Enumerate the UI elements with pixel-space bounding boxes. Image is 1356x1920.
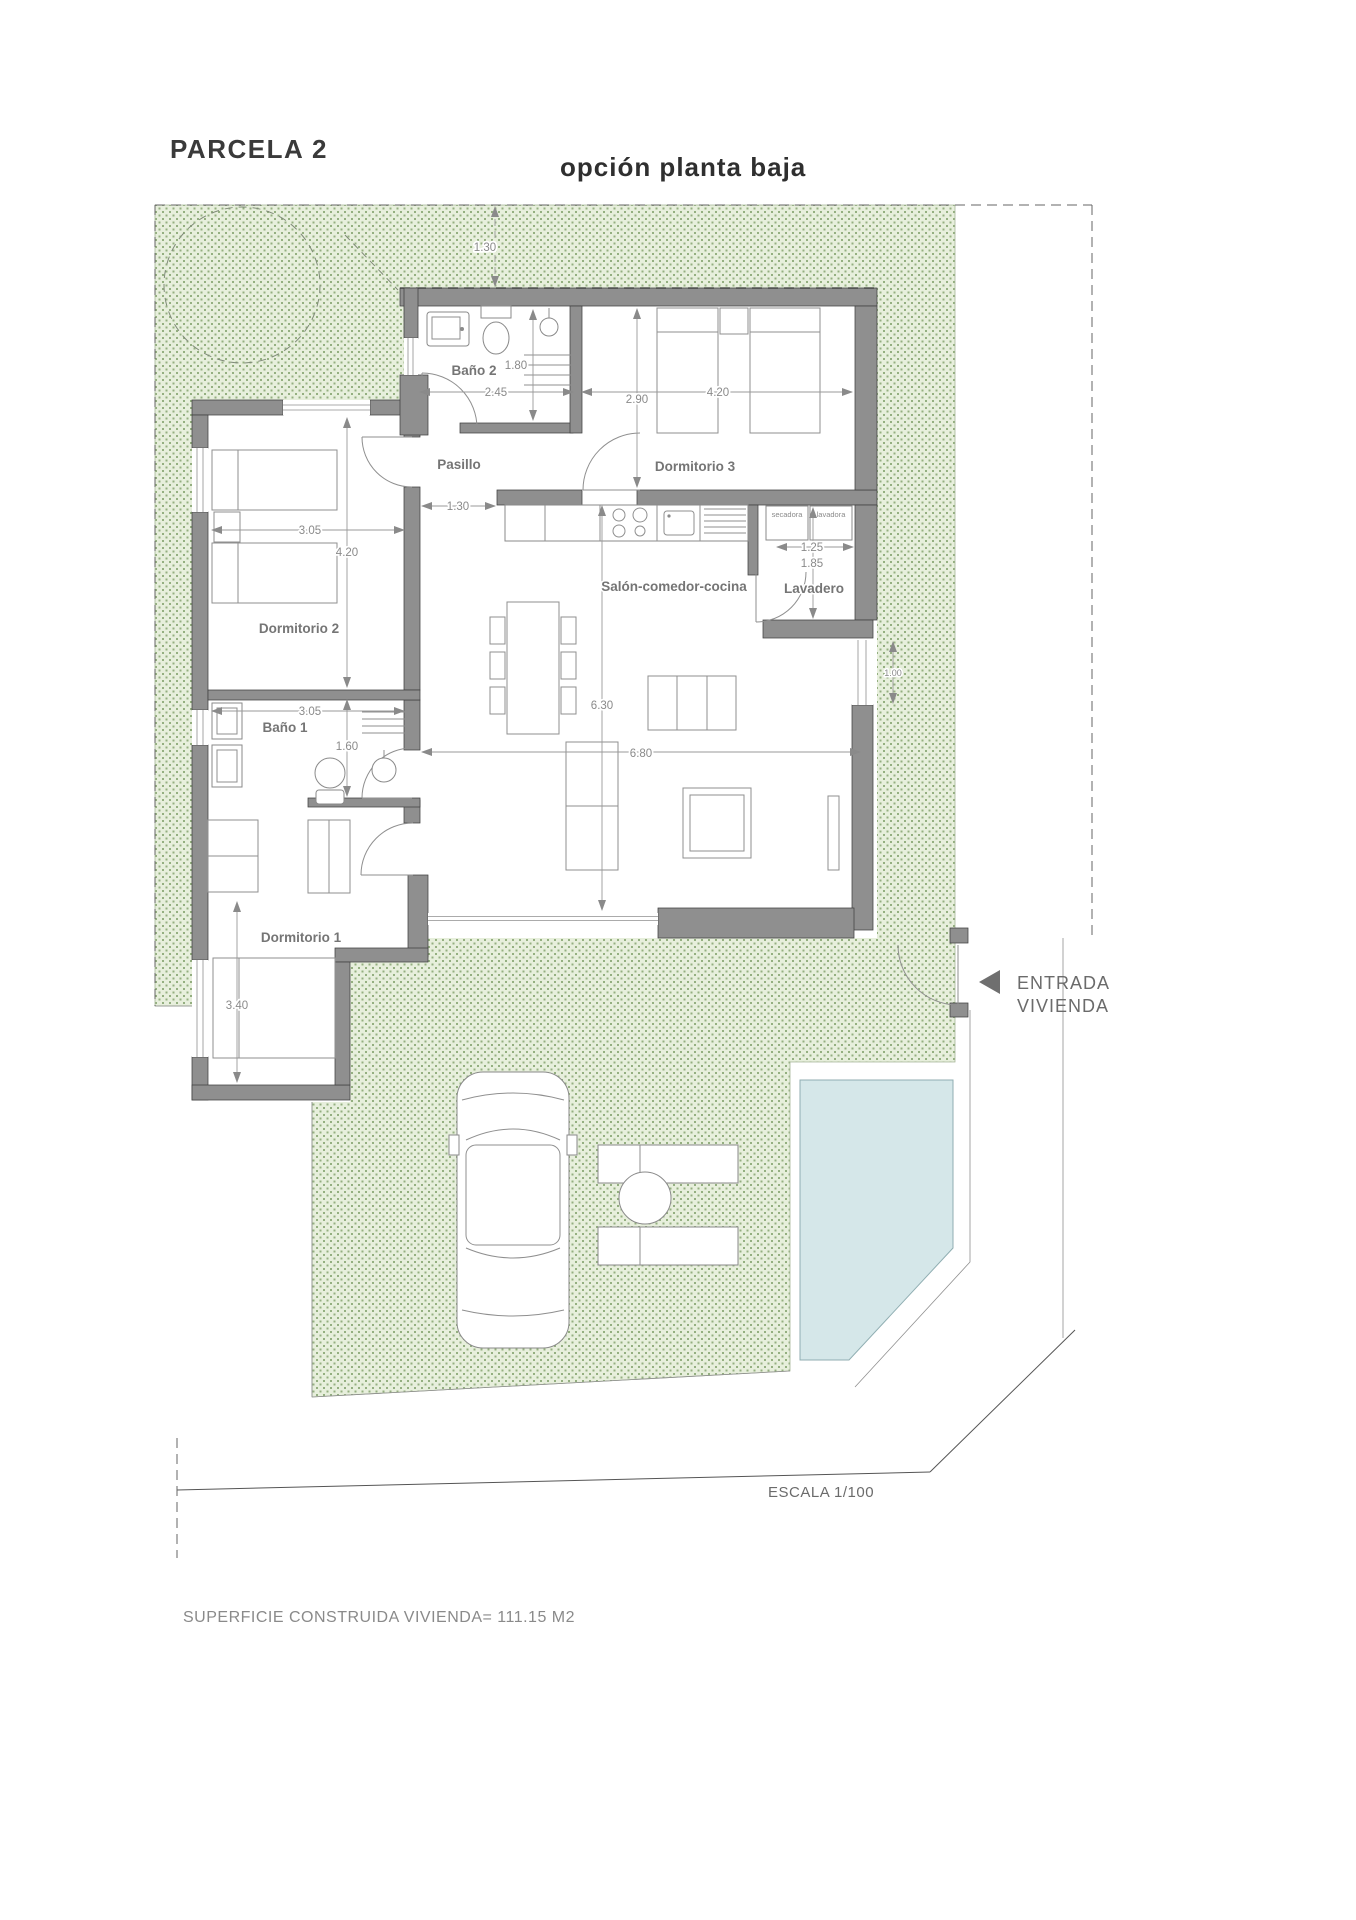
window-dorm1-left [192,960,208,1057]
page-subtitle: opción planta baja [560,152,806,182]
dining-table [507,602,559,734]
window-bano2 [404,338,418,375]
window-dorm2-top [283,400,370,415]
room-label-bano1: Baño 1 [262,720,308,735]
dim-east-window: 1.00 [884,668,902,678]
room-label-dormitorio1: Dormitorio 1 [261,930,342,945]
entrance-annotation: ENTRADA VIVIENDA [979,970,1110,1016]
scale-label: ESCALA 1/100 [768,1484,874,1501]
kitchen-counter [505,505,748,541]
dim-bano2-width: 2.45 [485,387,507,399]
appliance-label-dryer: secadora [772,510,804,519]
shower-head [540,318,558,336]
corner-chamfer [930,1330,1075,1472]
coffee-table [683,788,751,858]
room-label-lavadero: Lavadero [784,581,844,596]
chair [490,617,505,644]
car [449,1072,577,1348]
dim-setback-top: 1.30 [474,242,496,254]
dim-dorm3-depth: 2.90 [626,394,648,406]
pool [800,1010,970,1387]
sun-lounger-2 [598,1227,738,1265]
chair [490,652,505,679]
bed [657,308,718,433]
dim-hall-width: 1.30 [447,501,469,513]
bed [212,543,337,603]
bed [750,308,820,433]
entrance-label-1: ENTRADA [1017,973,1110,993]
appliance-label-washer: lavadora [817,510,847,519]
room-label-dormitorio2: Dormitorio 2 [259,621,339,636]
window-east [852,640,873,705]
room-label-dormitorio3: Dormitorio 3 [655,459,736,474]
dim-bano1-width: 3.05 [299,706,321,718]
floor-plan-page: PARCELA 2 opción planta baja [0,0,1356,1920]
dim-salon-depth: 6.30 [591,700,613,712]
garden-table [619,1172,671,1224]
nightstand [214,512,240,542]
room-label-pasillo: Pasillo [437,457,481,472]
toilet [315,758,345,788]
dim-dorm2-width: 3.05 [299,525,321,537]
room-label-bano2: Baño 2 [451,363,496,378]
chair [561,652,576,679]
sliding-door-south [428,913,658,925]
car-mirror-left [449,1135,459,1155]
toilet-tank [481,306,511,318]
dim-dorm2-depth: 4.20 [336,547,358,559]
dim-salon-width: 6.80 [630,748,652,760]
window-bano1-left [192,710,208,745]
area-label: SUPERFICIE CONSTRUIDA VIVIENDA= 111.15 M… [183,1609,575,1626]
sun-lounger-1 [598,1145,738,1183]
sideboard [828,796,839,870]
dim-bano2-depth: 1.80 [505,360,527,372]
chair [561,617,576,644]
page-title: PARCELA 2 [170,134,328,164]
car-mirror-right [567,1135,577,1155]
chair [490,687,505,714]
dim-lavadero-depth: 1.85 [801,558,823,570]
sofa [648,676,736,730]
dim-bano1-depth: 1.60 [336,741,358,753]
room-label-salon: Salón-comedor-cocina [601,579,747,594]
bed [212,450,337,510]
dim-dorm3-width: 4.20 [707,387,729,399]
entrance-label-2: VIVIENDA [1017,996,1109,1016]
toilet [483,322,509,354]
nightstand [720,308,748,334]
window-dorm2-left [192,448,208,512]
dim-dorm1-depth: 3.40 [226,1000,248,1012]
shower-head [372,758,396,782]
entrance-arrow-icon [979,970,1000,994]
dim-lavadero-width: 1.25 [801,542,823,554]
chair [561,687,576,714]
floor-plan-drawing: PARCELA 2 opción planta baja [0,0,1356,1920]
